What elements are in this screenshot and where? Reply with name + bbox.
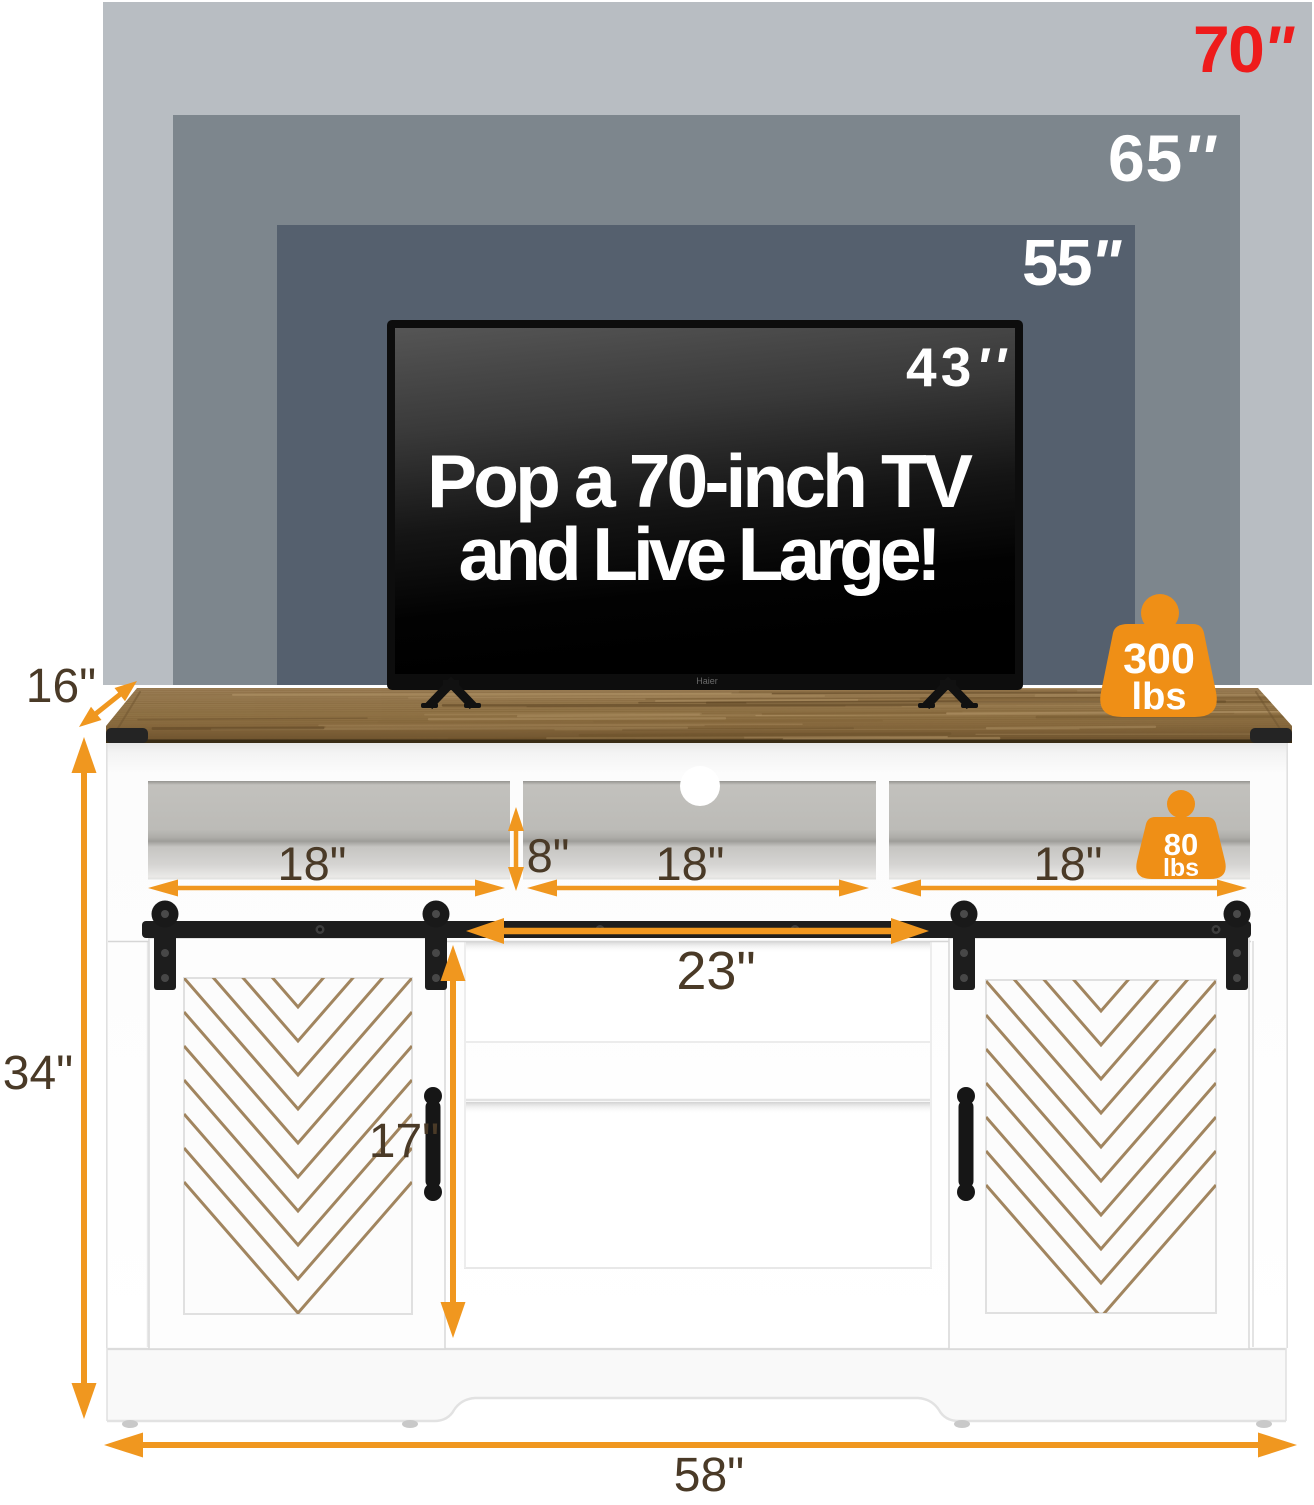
svg-text:34": 34"	[3, 1047, 73, 1100]
svg-text:lbs: lbs	[1163, 854, 1199, 882]
svg-text:8": 8"	[527, 829, 570, 882]
svg-text:Pop a 70-inch TV: Pop a 70-inch TV	[427, 439, 973, 523]
svg-text:70'': 70''	[1193, 12, 1295, 86]
svg-text:lbs: lbs	[1132, 676, 1187, 718]
svg-text:58": 58"	[674, 1449, 744, 1500]
svg-text:55'': 55''	[1022, 226, 1123, 299]
svg-text:17": 17"	[369, 1115, 439, 1168]
svg-text:18": 18"	[1034, 837, 1103, 890]
svg-text:16": 16"	[26, 660, 96, 713]
svg-text:23": 23"	[676, 941, 755, 1001]
svg-text:18": 18"	[278, 837, 347, 890]
svg-text:43'': 43''	[906, 336, 1008, 398]
svg-text:65'': 65''	[1108, 121, 1217, 195]
svg-text:Haier: Haier	[696, 676, 718, 686]
svg-text:18": 18"	[656, 837, 725, 890]
svg-text:and Live Large!: and Live Large!	[459, 512, 942, 596]
